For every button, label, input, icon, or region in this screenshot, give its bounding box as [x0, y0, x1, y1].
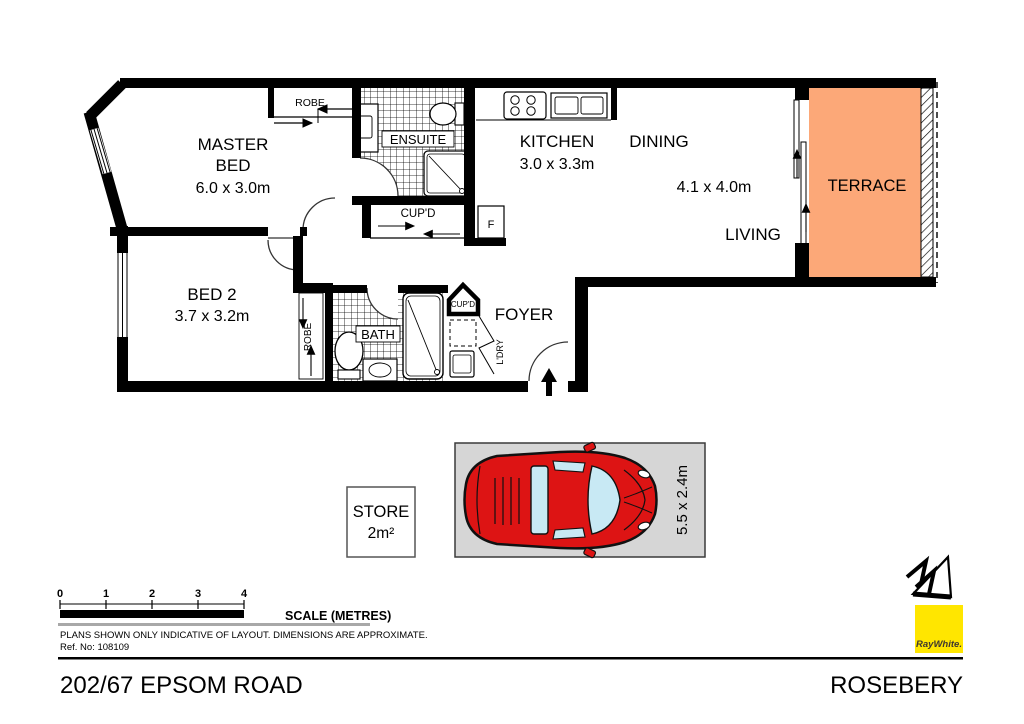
wall-master-bed2	[110, 227, 268, 236]
store-box: STORE 2m²	[347, 487, 415, 557]
master-door-arc	[303, 198, 335, 230]
ensuite-toilet	[430, 103, 456, 125]
car-icon	[465, 442, 657, 559]
wall-bottom-a	[117, 381, 528, 392]
laundry-bifold-door	[479, 316, 494, 374]
wall-bed2-right	[293, 236, 303, 288]
label-bed2: BED 2	[187, 285, 236, 304]
label-terrace: TERRACE	[828, 177, 907, 195]
wall-bath-top-b	[398, 285, 448, 293]
svg-text:0: 0	[57, 588, 63, 600]
svg-text:4: 4	[241, 588, 248, 600]
disclaimer-text: PLANS SHOWN ONLY INDICATIVE OF LAYOUT. D…	[60, 630, 428, 641]
wall-terrace-bottom	[806, 277, 936, 287]
foyer-cupboard-laundry	[449, 285, 494, 377]
label-living-dining-dims: 4.1 x 4.0m	[677, 179, 752, 196]
label-foyer: FOYER	[495, 305, 554, 324]
wall-foyer-right	[575, 277, 588, 391]
svg-text:2: 2	[149, 588, 155, 600]
cooktop	[504, 92, 546, 119]
label-kitchen-dims: 3.0 x 3.3m	[520, 156, 595, 173]
terrace-sliding-door	[793, 98, 809, 246]
ref-number: Ref. No: 108109	[60, 642, 129, 653]
label-living: LIVING	[725, 225, 781, 244]
floorplan-page: MASTER BED 6.0 x 3.0m BED 2 3.7 x 3.2m K…	[0, 0, 1024, 724]
label-store: STORE	[353, 503, 410, 521]
floorplan-drawing: MASTER BED 6.0 x 3.0m BED 2 3.7 x 3.2m K…	[0, 0, 1024, 724]
label-fridge: F	[488, 219, 495, 231]
car-rear-window	[531, 466, 548, 534]
notes: PLANS SHOWN ONLY INDICATIVE OF LAYOUT. D…	[60, 630, 428, 653]
label-car-space-dims: 5.5 x 2.4m	[674, 465, 691, 535]
svg-text:BED: BED	[216, 156, 251, 175]
label-ensuite: ENSUITE	[390, 132, 447, 147]
label-cupd-hall: CUP'D	[401, 208, 436, 220]
north-arrow-icon	[907, 557, 951, 597]
wall-kitchen-bottom	[464, 238, 506, 246]
svg-text:3: 3	[195, 588, 201, 600]
label-kitchen: KITCHEN	[520, 132, 595, 151]
kitchen-bench	[476, 92, 611, 120]
wall-ensuite-left	[352, 88, 361, 158]
raywhite-logo: RayWhite.	[915, 605, 963, 653]
label-dining: DINING	[629, 132, 689, 151]
scale-gray-rule	[58, 623, 370, 626]
label-store-area: 2m²	[368, 525, 395, 542]
scale-bar-fill	[60, 610, 244, 618]
scale-bar: 0 1 2 3 4 SCALE (METRES)	[57, 588, 391, 626]
footer: 202/67 EPSOM ROAD ROSEBERY	[58, 657, 963, 699]
property-address: 202/67 EPSOM ROAD	[60, 672, 303, 699]
wall-bath-left	[325, 283, 333, 381]
label-bed2-dims: 3.7 x 3.2m	[175, 308, 250, 325]
raywhite-logo-text: RayWhite.	[916, 639, 962, 650]
property-suburb: ROSEBERY	[830, 672, 963, 699]
entry-arrow	[541, 368, 557, 396]
wall-kitchen-dining-junction	[611, 83, 617, 120]
label-laundry: L'DRY	[495, 339, 505, 365]
wall-cupd-left	[362, 205, 371, 238]
wall-chamfer	[90, 84, 122, 116]
wall-bath-top-a	[333, 285, 367, 293]
label-master-bed: MASTER	[198, 135, 269, 154]
wall-top	[120, 78, 936, 88]
wall-living-bottom	[575, 277, 806, 287]
car-side-window-top	[553, 461, 585, 472]
label-master-bed-dims: 6.0 x 3.0m	[196, 180, 271, 197]
label-bath: BATH	[361, 327, 395, 342]
hall-cupboard	[370, 226, 464, 238]
wall-ensuite-bottom	[352, 196, 474, 205]
label-cupd-foyer: CUP'D	[451, 300, 475, 309]
wall-kitchen-left	[464, 88, 475, 243]
footer-rule	[58, 657, 963, 660]
car-space: 5.5 x 2.4m	[455, 442, 705, 559]
svg-text:1: 1	[103, 588, 109, 600]
car-side-window-bottom	[553, 528, 585, 539]
scale-title: SCALE (METRES)	[285, 609, 391, 623]
label-robe-master: ROBE	[295, 97, 325, 109]
label-robe-bed2: ROBE	[303, 323, 314, 352]
washer-space	[450, 320, 476, 346]
